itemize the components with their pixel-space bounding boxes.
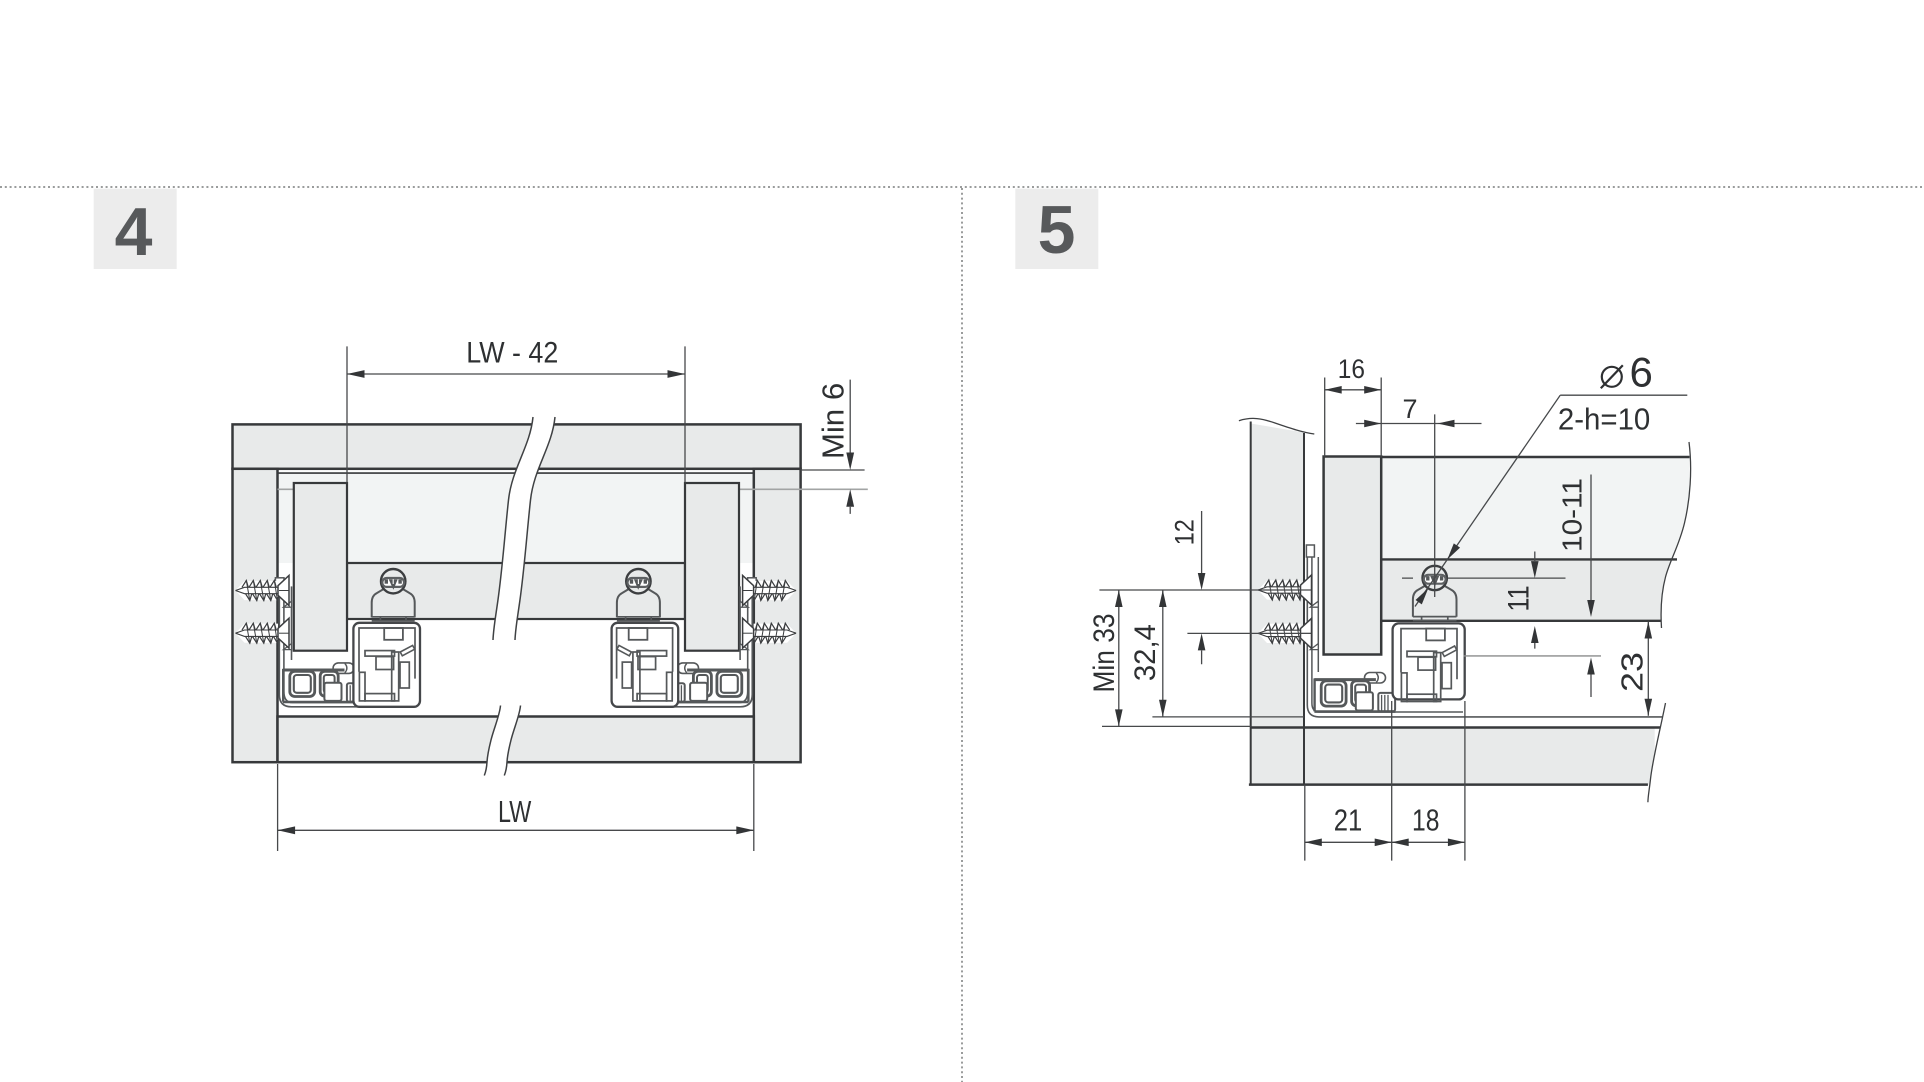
svg-text:2-h=10: 2-h=10 [1558,401,1650,436]
svg-text:4: 4 [115,194,153,270]
svg-text:16: 16 [1338,354,1365,384]
svg-text:6: 6 [1630,349,1653,396]
svg-text:Min 6: Min 6 [816,383,851,459]
svg-text:7: 7 [1402,394,1417,424]
svg-text:10-11: 10-11 [1557,478,1588,552]
svg-text:LW: LW [498,794,532,829]
svg-text:5: 5 [1038,192,1076,268]
svg-text:23: 23 [1615,652,1650,692]
svg-text:21: 21 [1334,803,1363,838]
svg-text:Min 33: Min 33 [1088,614,1121,693]
svg-text:12: 12 [1170,519,1200,545]
svg-text:11: 11 [1502,586,1535,612]
svg-text:32,4: 32,4 [1129,624,1162,681]
svg-text:LW - 42: LW - 42 [466,337,558,370]
svg-text:18: 18 [1412,803,1439,838]
